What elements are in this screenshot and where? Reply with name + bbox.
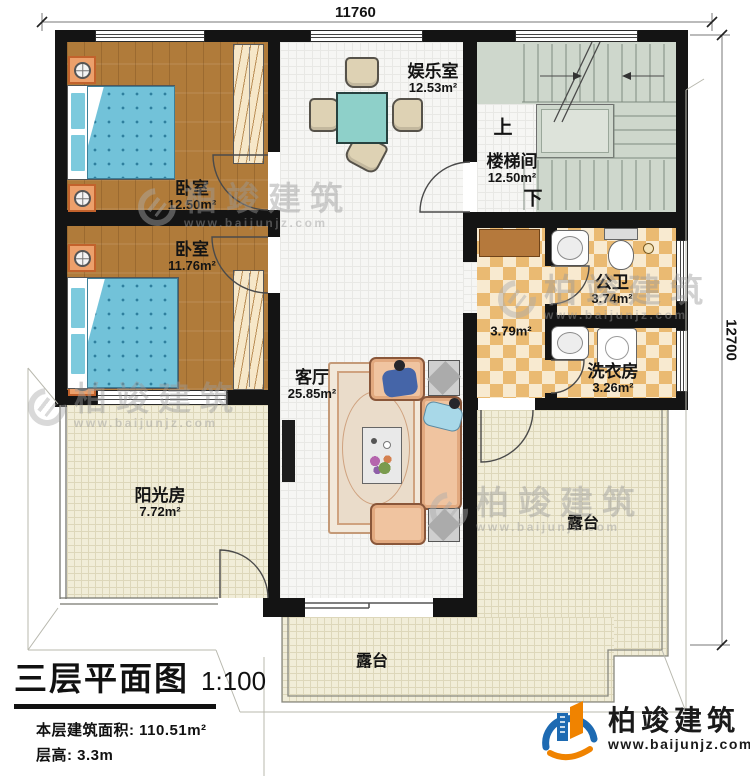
sliding-door-living-bottom: [305, 603, 433, 608]
room-label-bathroom: 公卫 3.74m²: [591, 273, 632, 307]
company-name: 柏竣建筑: [608, 706, 750, 737]
dimension-right: 12700: [723, 319, 740, 361]
room-label-entertainment: 娱乐室 12.53m²: [408, 62, 459, 96]
door-terrace-right: [481, 410, 533, 462]
room-label-laundry: 洗衣房 3.26m²: [588, 362, 639, 396]
room-label-bedroom2: 卧室 11.76m²: [168, 240, 216, 274]
room-label-living: 客厅 25.85m²: [288, 368, 336, 402]
title-underline: [14, 704, 216, 709]
company-url: www.baijunjz.com: [608, 736, 750, 752]
company-logo-icon: [540, 697, 598, 761]
room-label-sunroom: 阳光房 7.72m²: [135, 486, 186, 520]
company-logo: 柏竣建筑 www.baijunjz.com: [540, 697, 750, 761]
stair-up-label: 上: [493, 113, 512, 140]
plan-title: 三层平面图: [14, 652, 189, 700]
stair-treads-icon: [522, 44, 676, 210]
floor-height-label: 层高:: [36, 747, 73, 764]
door-bedroom2: [212, 237, 268, 293]
stair-down-label: 下: [523, 184, 542, 211]
terrace-parapets: [282, 410, 668, 702]
dimension-top: 11760: [335, 4, 376, 21]
floor-plan-canvas: 11760 12700 卧室 12.50m² 卧室 11.76m² 娱乐室 12…: [0, 0, 750, 781]
room-label-bedroom1: 卧室 12.50m²: [168, 179, 216, 213]
door-bedroom1: [213, 155, 268, 210]
door-laundry: [551, 360, 584, 393]
floor-area-label: 本层建筑面积:: [36, 722, 135, 739]
door-arcs: [212, 155, 589, 598]
door-stairwell: [420, 162, 470, 212]
room-label-stairwell: 楼梯间 12.50m²: [487, 152, 538, 186]
floor-height-value: 3.3m: [77, 747, 113, 764]
room-label-terrace-bottom: 露台: [356, 653, 388, 671]
title-block: 三层平面图 1:100 本层建筑面积: 110.51m² 层高: 3.3m: [14, 652, 266, 765]
dimension-lines: [42, 13, 730, 645]
door-sunroom: [220, 550, 268, 598]
room-label-terrace-right: 露台: [567, 515, 599, 533]
dimension-ticks: [37, 17, 727, 650]
stair-break-line: [540, 42, 664, 122]
plan-scale: 1:100: [201, 666, 266, 697]
floor-area-value: 110.51m²: [139, 722, 206, 739]
room-label-hallway-area: 3.79m²: [490, 324, 531, 339]
door-bathroom: [551, 266, 589, 304]
